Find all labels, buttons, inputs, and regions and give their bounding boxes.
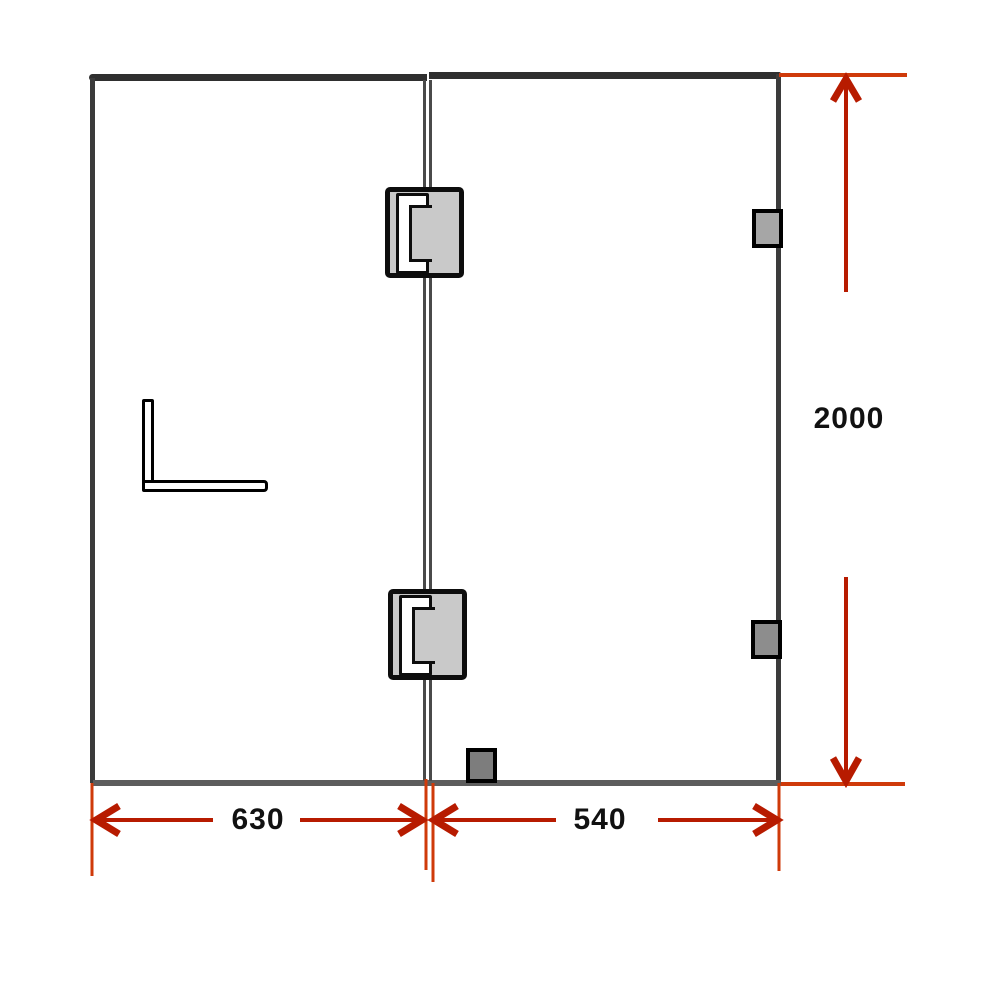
hinge-bottom-notch [412,607,435,664]
shower-screen-diagram: 630 540 2000 [0,0,1000,1000]
dim-540-arrow-left [434,806,457,834]
dim-540-arrow-right [754,806,777,834]
dim-2000-arrow-down [833,758,859,781]
dim-630-arrow-left [96,806,119,834]
dim-2000-arrow-up [833,79,859,101]
hinge-top-notch [409,205,432,262]
handle-horizontal-bar [142,480,268,492]
dimension-label-630: 630 [216,803,300,837]
wall-bracket-bottom [751,620,782,659]
dimension-label-2000: 2000 [797,402,901,436]
dimension-annotations [0,0,1000,1000]
bottom-glass-edge [93,780,781,786]
top-rail-right [429,72,781,79]
left-glass-edge [90,78,95,783]
handle-vertical-bar [142,399,154,483]
top-rail-left [89,74,427,81]
floor-bracket [466,748,497,783]
wall-bracket-top [752,209,783,248]
dim-630-arrow-right [399,806,422,834]
dimension-label-540: 540 [558,803,642,837]
right-glass-edge [776,74,781,783]
